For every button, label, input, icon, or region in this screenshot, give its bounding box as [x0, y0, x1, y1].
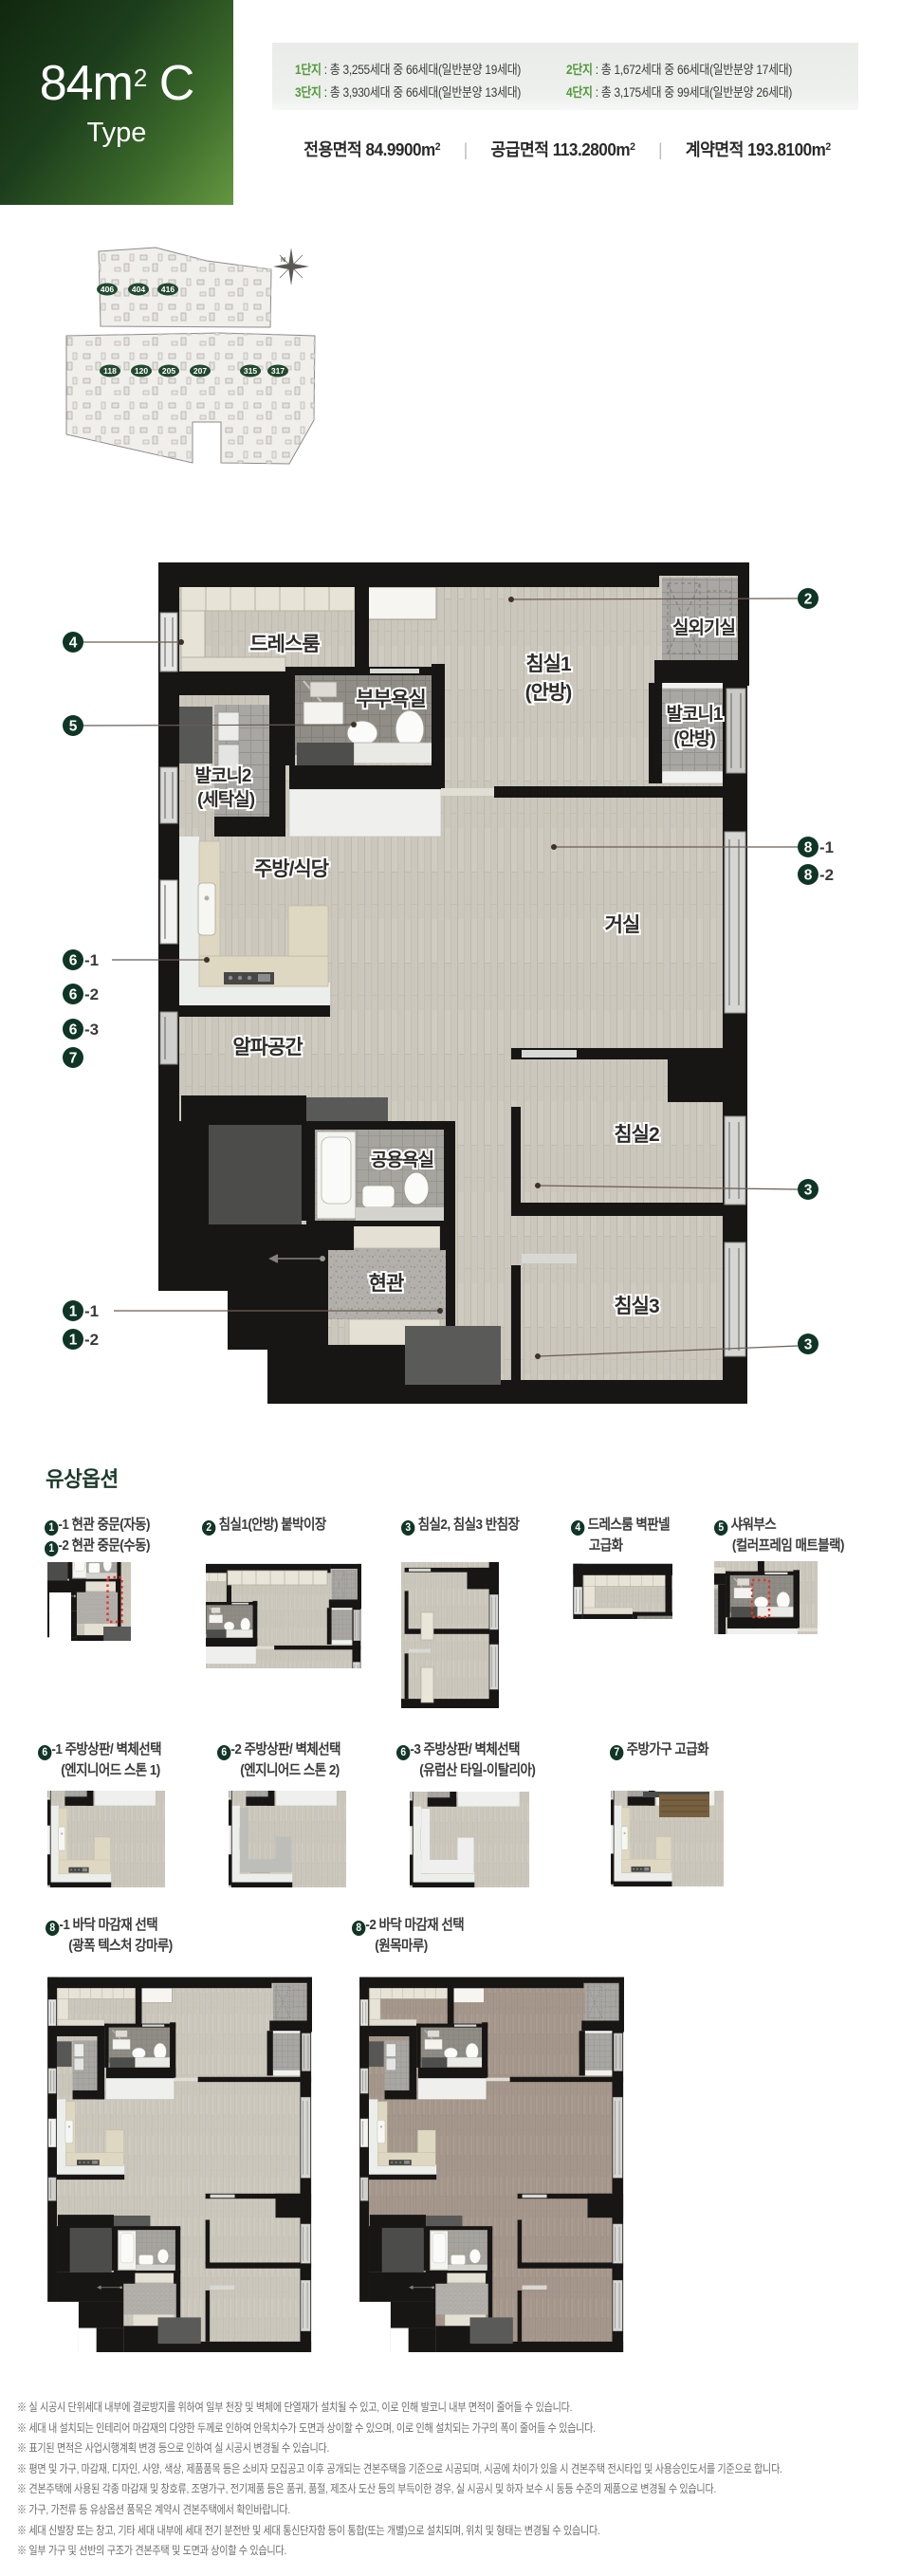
- svg-text:406: 406: [101, 285, 114, 294]
- svg-text:부부욕실: 부부욕실: [356, 689, 425, 710]
- svg-text:5: 5: [69, 719, 78, 735]
- svg-text:317: 317: [271, 366, 285, 376]
- svg-text:거실: 거실: [605, 914, 640, 936]
- svg-text:2: 2: [804, 592, 813, 608]
- svg-text:-1: -1: [819, 838, 834, 856]
- svg-text:6: 6: [69, 1022, 78, 1039]
- svg-text:현관: 현관: [369, 1273, 404, 1295]
- svg-text:1: 1: [69, 1304, 78, 1320]
- svg-text:8: 8: [804, 868, 813, 884]
- svg-text:-1: -1: [84, 1302, 99, 1320]
- svg-text:실외기실: 실외기실: [672, 617, 735, 638]
- svg-text:1: 1: [69, 1333, 78, 1349]
- svg-text:-2: -2: [84, 1331, 99, 1349]
- svg-text:-3: -3: [84, 1021, 99, 1039]
- svg-text:침실2: 침실2: [614, 1124, 659, 1146]
- svg-text:발코니1: 발코니1: [666, 704, 723, 725]
- svg-text:드레스룸: 드레스룸: [249, 634, 320, 655]
- svg-text:404: 404: [132, 285, 145, 294]
- svg-text:주방/식당: 주방/식당: [254, 858, 329, 880]
- svg-text:침실1: 침실1: [525, 653, 572, 675]
- svg-text:205: 205: [162, 366, 175, 376]
- svg-text:발코니2: 발코니2: [194, 765, 250, 786]
- svg-text:(안방): (안방): [525, 682, 572, 704]
- svg-text:416: 416: [161, 285, 175, 294]
- svg-text:118: 118: [103, 366, 117, 376]
- svg-text:-2: -2: [84, 985, 99, 1003]
- svg-text:3: 3: [804, 1183, 813, 1199]
- svg-text:알파공간: 알파공간: [232, 1037, 303, 1058]
- svg-text:-1: -1: [84, 951, 99, 969]
- svg-text:(안방): (안방): [673, 728, 715, 749]
- svg-text:공용욕실: 공용욕실: [371, 1150, 433, 1170]
- svg-text:8: 8: [804, 840, 813, 856]
- svg-text:-2: -2: [819, 866, 834, 884]
- svg-text:N: N: [281, 257, 285, 264]
- svg-text:120: 120: [135, 366, 148, 376]
- svg-text:315: 315: [244, 366, 257, 376]
- svg-text:7: 7: [69, 1051, 78, 1067]
- svg-text:4: 4: [69, 635, 78, 652]
- svg-text:6: 6: [69, 953, 78, 969]
- svg-text:3: 3: [804, 1337, 813, 1353]
- svg-text:침실3: 침실3: [614, 1296, 659, 1317]
- svg-text:6: 6: [69, 987, 78, 1003]
- svg-text:207: 207: [193, 366, 207, 376]
- svg-text:(세탁실): (세탁실): [197, 789, 255, 810]
